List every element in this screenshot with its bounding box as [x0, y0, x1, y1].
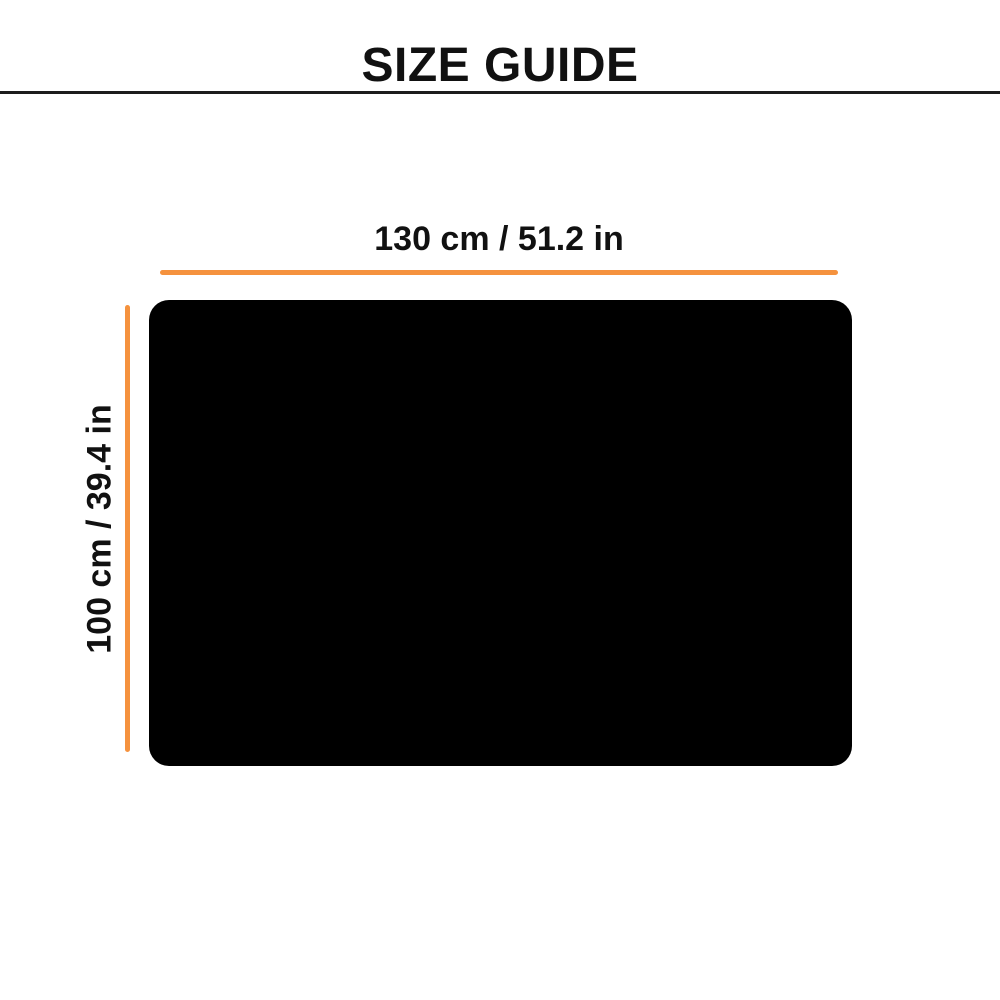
width-dimension-line [160, 270, 838, 275]
width-dimension-label: 130 cm / 51.2 in [160, 220, 838, 259]
height-dimension-label: 100 cm / 39.4 in [78, 306, 122, 753]
height-dimension-line [125, 305, 130, 752]
title-divider-line [0, 91, 1000, 94]
size-guide-page: SIZE GUIDE 130 cm / 51.2 in 100 cm / 39.… [0, 0, 1000, 1000]
product-silhouette [149, 300, 852, 766]
page-title: SIZE GUIDE [0, 38, 1000, 93]
